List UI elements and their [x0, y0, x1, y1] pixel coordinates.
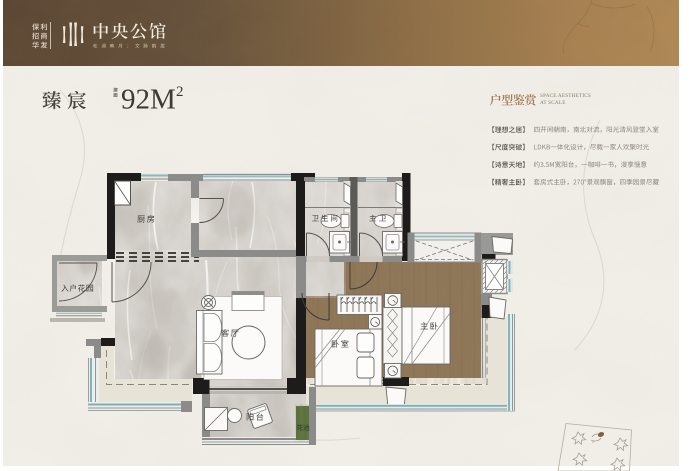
svg-text:AT SCALE: AT SCALE	[540, 100, 566, 106]
svg-text:92M: 92M	[121, 84, 176, 116]
svg-text:2: 2	[176, 84, 184, 100]
svg-text:SPACE AESTHETICS: SPACE AESTHETICS	[540, 93, 591, 99]
